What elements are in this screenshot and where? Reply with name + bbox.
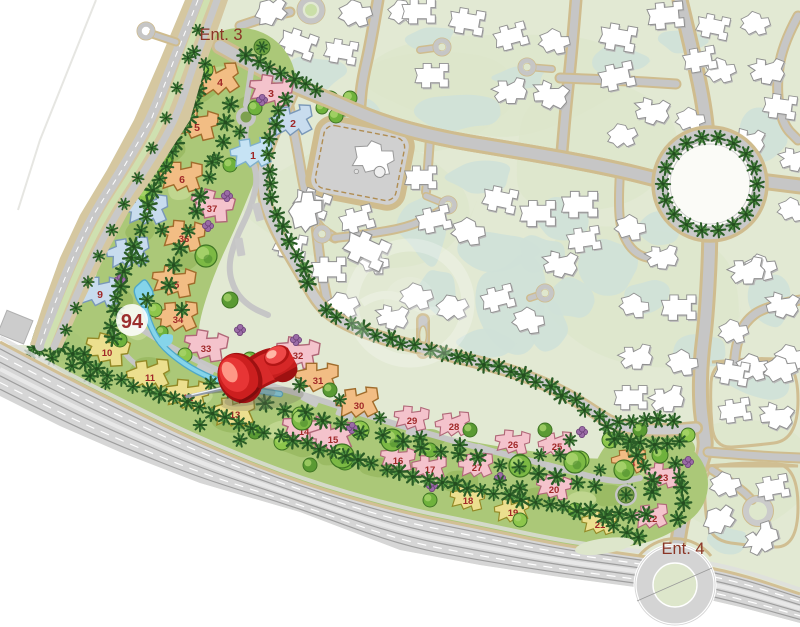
svg-text:6: 6 bbox=[179, 174, 185, 186]
svg-text:20: 20 bbox=[549, 485, 560, 496]
svg-text:10: 10 bbox=[102, 348, 113, 359]
svg-text:31: 31 bbox=[313, 376, 324, 387]
svg-text:25: 25 bbox=[552, 442, 563, 453]
svg-text:30: 30 bbox=[354, 401, 365, 412]
svg-text:2: 2 bbox=[290, 118, 296, 130]
svg-text:28: 28 bbox=[449, 422, 460, 433]
svg-text:4: 4 bbox=[217, 77, 223, 89]
svg-text:18: 18 bbox=[463, 496, 474, 507]
svg-text:94: 94 bbox=[121, 311, 144, 333]
svg-text:33: 33 bbox=[201, 344, 212, 355]
svg-text:Ent. 3: Ent. 3 bbox=[199, 26, 242, 44]
svg-text:Ent. 4: Ent. 4 bbox=[661, 540, 704, 558]
svg-text:37: 37 bbox=[207, 204, 218, 215]
svg-text:1: 1 bbox=[250, 150, 256, 162]
svg-text:26: 26 bbox=[508, 440, 519, 451]
svg-text:3: 3 bbox=[268, 88, 274, 100]
svg-text:9: 9 bbox=[97, 289, 103, 301]
svg-text:29: 29 bbox=[407, 416, 418, 427]
